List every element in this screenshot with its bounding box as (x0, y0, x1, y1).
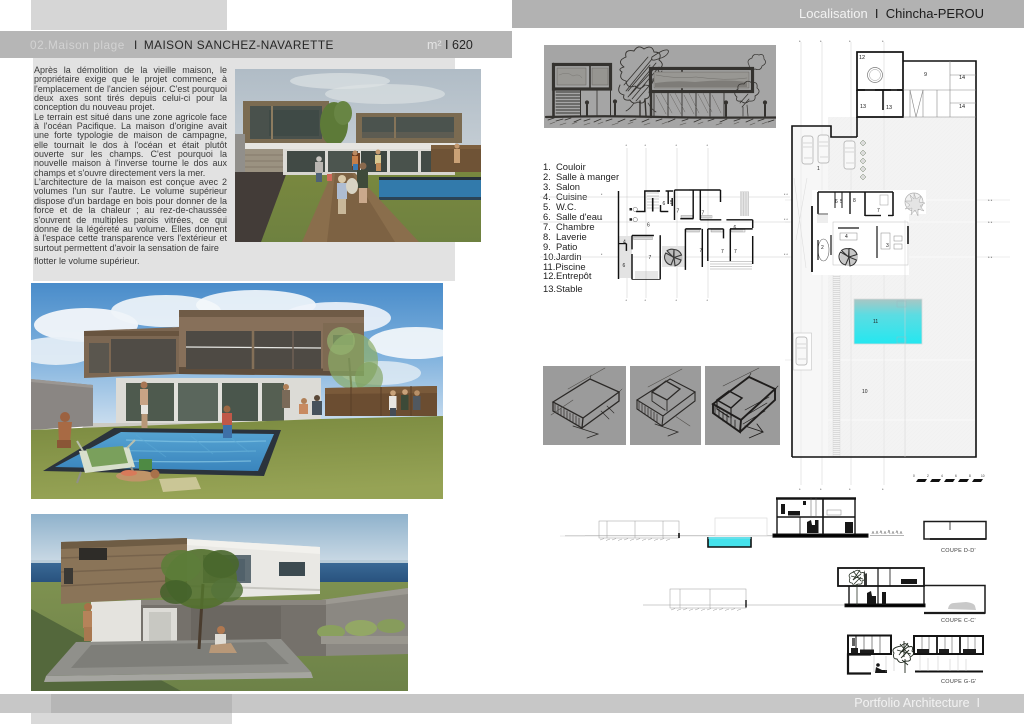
svg-text:*: * (601, 253, 603, 257)
svg-text:*: * (707, 299, 709, 303)
svg-text:9: 9 (924, 72, 927, 78)
svg-text:12: 12 (859, 55, 865, 61)
svg-text:13: 13 (860, 104, 866, 110)
svg-text:*: * (626, 299, 628, 303)
svg-text:7: 7 (721, 249, 724, 255)
svg-text:14: 14 (959, 75, 965, 81)
svg-text:3: 3 (886, 243, 889, 249)
svg-text:5: 5 (670, 200, 673, 206)
svg-text:6: 6 (623, 263, 626, 269)
svg-text:*: * (676, 144, 678, 148)
svg-text:*: * (601, 193, 603, 197)
svg-text:6: 6 (663, 201, 666, 207)
svg-text:*: * (645, 144, 647, 148)
svg-text:*: * (820, 39, 822, 44)
svg-text:7: 7 (734, 249, 737, 255)
svg-text:7: 7 (700, 248, 703, 254)
svg-text:*: * (882, 39, 884, 44)
svg-text:COUPE D-D': COUPE D-D' (941, 548, 976, 554)
svg-text:7: 7 (677, 209, 680, 215)
svg-text:6: 6 (647, 223, 650, 229)
svg-text:* *: * * (988, 220, 993, 225)
svg-text:* *: * * (988, 255, 993, 260)
svg-text:10: 10 (862, 389, 868, 395)
svg-text:*: * (707, 144, 709, 148)
svg-text:13: 13 (886, 105, 892, 111)
svg-text:*: * (645, 299, 647, 303)
svg-text:*: * (601, 218, 603, 222)
svg-text:5: 5 (840, 199, 843, 205)
svg-text:7: 7 (649, 255, 652, 261)
svg-text:*: * (676, 299, 678, 303)
svg-text:6: 6 (835, 199, 838, 205)
svg-text:11: 11 (873, 319, 878, 325)
svg-text:1: 1 (817, 166, 820, 172)
svg-text:2: 2 (821, 245, 824, 251)
svg-text:7: 7 (877, 208, 880, 214)
svg-text:4: 4 (623, 240, 626, 246)
svg-text:*: * (849, 39, 851, 44)
svg-text:COUPE C-C': COUPE C-C' (941, 618, 976, 624)
svg-text:* *: * * (988, 198, 993, 203)
svg-text:*: * (799, 39, 801, 44)
svg-text:7: 7 (702, 211, 705, 217)
svg-text:14: 14 (959, 104, 965, 110)
svg-text:6: 6 (734, 225, 737, 231)
svg-text:COUPE G-G': COUPE G-G' (941, 679, 977, 685)
svg-text:*: * (626, 144, 628, 148)
svg-text:4: 4 (845, 234, 848, 240)
svg-text:8: 8 (853, 198, 856, 204)
